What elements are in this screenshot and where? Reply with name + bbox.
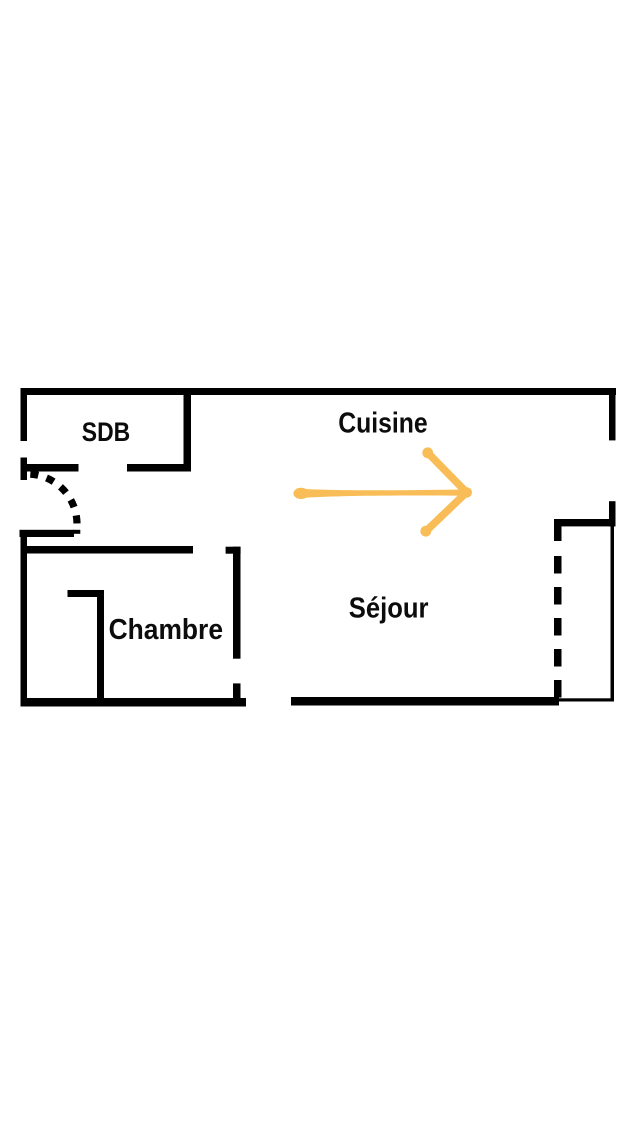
svg-text:SDB: SDB <box>82 417 130 447</box>
svg-text:Séjour: Séjour <box>349 593 429 625</box>
svg-text:Chambre: Chambre <box>109 614 223 646</box>
svg-text:Cuisine: Cuisine <box>338 408 427 440</box>
